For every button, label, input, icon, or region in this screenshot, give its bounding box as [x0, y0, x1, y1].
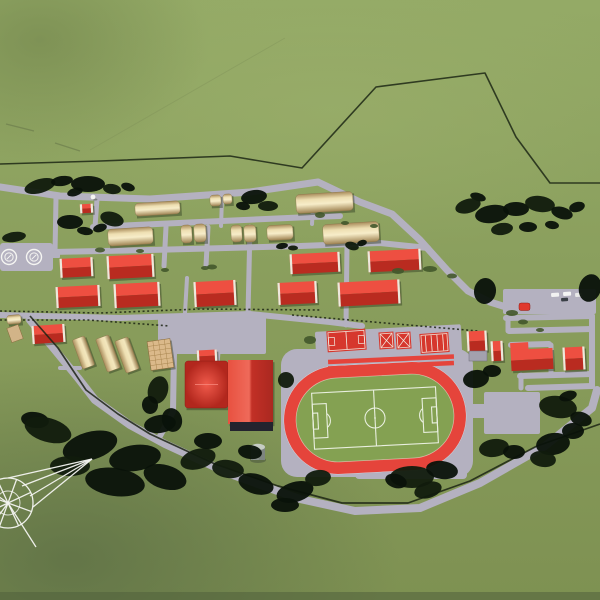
court-cross [395, 331, 411, 349]
roof-shaded [563, 358, 586, 371]
bush [506, 310, 518, 316]
red-building [106, 254, 156, 282]
hall-roof [228, 360, 273, 424]
red-building [290, 252, 343, 277]
stadium [281, 359, 468, 476]
gable-end [80, 204, 83, 213]
roof-sunlit [510, 348, 552, 361]
bush [423, 266, 437, 272]
hangar-roof [267, 224, 294, 240]
tree-cluster [57, 215, 83, 229]
hangar-roof [210, 195, 222, 207]
bush [341, 221, 349, 225]
red-building [80, 204, 95, 216]
red-building [466, 330, 489, 353]
masterplan-render [0, 0, 600, 600]
red-building [562, 346, 587, 372]
parked-car [561, 298, 568, 302]
parked-car [551, 293, 559, 297]
hangar-building [135, 201, 182, 219]
roof-sunlit [562, 346, 585, 359]
road-loop-4 [520, 374, 592, 376]
hangar-roof [223, 194, 233, 204]
roof-shaded [107, 265, 155, 279]
roof-shaded [467, 340, 487, 351]
tree-cluster [194, 433, 222, 449]
red-building [490, 341, 505, 364]
roof-shaded [194, 292, 237, 307]
hangar-roof [7, 314, 22, 324]
white-sphere [91, 195, 96, 200]
roof-shaded [60, 267, 93, 278]
court-stripes [419, 332, 449, 354]
roof-sunlit [60, 257, 93, 268]
gable-end [91, 204, 94, 213]
hangar-building [267, 224, 295, 243]
roof-sunlit [113, 282, 160, 296]
hangar-building [7, 314, 23, 327]
red-building [337, 279, 402, 308]
bush [161, 268, 169, 272]
tree-cluster [483, 365, 501, 377]
red-vehicle [519, 303, 530, 311]
court-cross [378, 331, 394, 349]
gym-building [185, 361, 230, 410]
roof-sunlit [193, 280, 236, 295]
hangar-roof [231, 225, 243, 243]
hall-base [230, 422, 273, 431]
bush [136, 249, 144, 253]
parked-car [563, 292, 571, 296]
roof-sunlit [106, 254, 154, 268]
central-plaza [158, 316, 266, 354]
hangar-building [295, 191, 355, 216]
bush [315, 212, 325, 218]
tree-cluster [271, 498, 299, 512]
roof-shaded [278, 292, 318, 305]
road-loop-5 [528, 386, 592, 388]
bush [536, 328, 544, 332]
aerial-site-render [0, 0, 600, 600]
road-loop-1 [506, 316, 592, 318]
roof-sunlit [197, 349, 217, 356]
hangar-building [194, 224, 209, 245]
road-conn-1 [55, 198, 56, 253]
bush [201, 266, 209, 270]
red-building [193, 280, 238, 309]
hangar-roof [244, 225, 257, 243]
tree-cluster [503, 445, 525, 459]
court-basketball [326, 329, 366, 353]
red-building [55, 285, 102, 311]
hangar-roof [295, 191, 353, 213]
bush [447, 274, 457, 279]
gray-shed [469, 351, 487, 361]
bush [518, 320, 528, 325]
road-conn-7 [185, 278, 187, 313]
tree-cluster [288, 246, 298, 251]
red-building [277, 281, 319, 307]
bush [370, 224, 378, 228]
hall-building [228, 360, 275, 431]
tree-cluster [258, 201, 278, 211]
roof-shaded [511, 358, 553, 371]
roof-sunlit [466, 330, 486, 341]
tree-cluster [562, 423, 584, 439]
hangar-roof [108, 227, 154, 247]
bush [95, 248, 105, 253]
hangar-roof [181, 225, 193, 244]
hangar-roof [135, 201, 181, 217]
tree-cluster [503, 202, 529, 216]
red-building [113, 282, 162, 311]
road-conn-2 [95, 199, 97, 227]
bush [392, 268, 404, 274]
hangar-roof [194, 224, 207, 243]
roof-sunlit [277, 281, 317, 294]
tree-cluster [519, 222, 537, 232]
tan-grid-building [147, 338, 176, 372]
hangar-building [108, 227, 156, 249]
red-building [60, 257, 96, 280]
road-conn-3 [164, 227, 166, 266]
road-loop-2 [509, 329, 592, 331]
roof-shaded [114, 294, 161, 308]
bottom-shade [0, 592, 600, 600]
bush [304, 336, 316, 344]
red-building [31, 324, 67, 347]
